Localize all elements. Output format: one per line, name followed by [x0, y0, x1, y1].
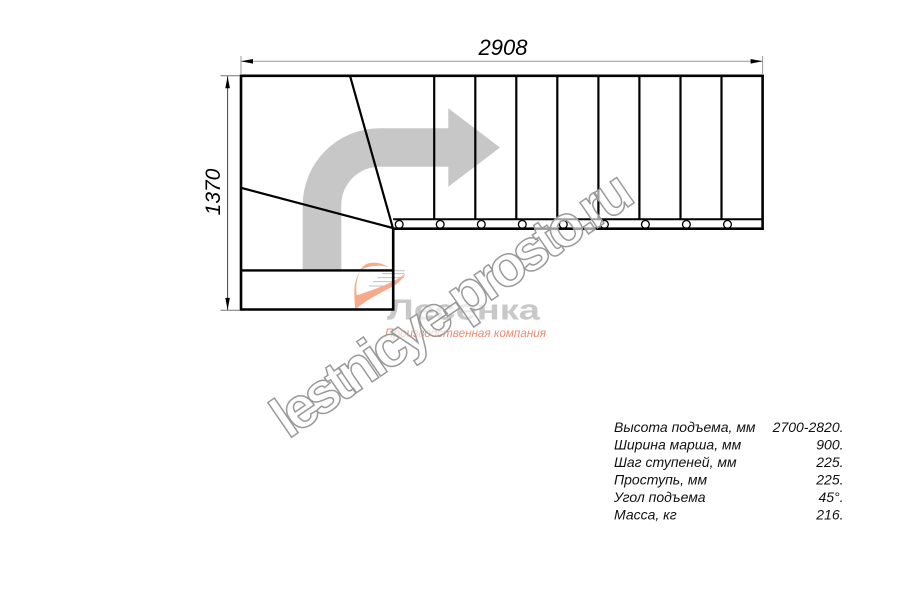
svg-text:225.: 225. [815, 454, 843, 470]
svg-text:Шаг ступеней, мм: Шаг ступеней, мм [614, 454, 737, 470]
svg-text:Высота подъема, мм: Высота подъема, мм [614, 419, 756, 435]
svg-text:45°.: 45°. [818, 489, 843, 505]
svg-text:2908: 2908 [478, 35, 529, 60]
svg-text:Ширина марша, мм: Ширина марша, мм [614, 437, 742, 453]
svg-text:1370: 1370 [202, 168, 225, 215]
svg-text:900.: 900. [816, 437, 843, 453]
svg-text:Масса, кг: Масса, кг [614, 507, 677, 523]
svg-text:225.: 225. [815, 472, 843, 488]
svg-text:216.: 216. [815, 507, 843, 523]
svg-text:2700-2820.: 2700-2820. [772, 419, 844, 435]
svg-text:Угол подъема: Угол подъема [613, 489, 706, 505]
svg-text:Проступь, мм: Проступь, мм [614, 472, 708, 488]
